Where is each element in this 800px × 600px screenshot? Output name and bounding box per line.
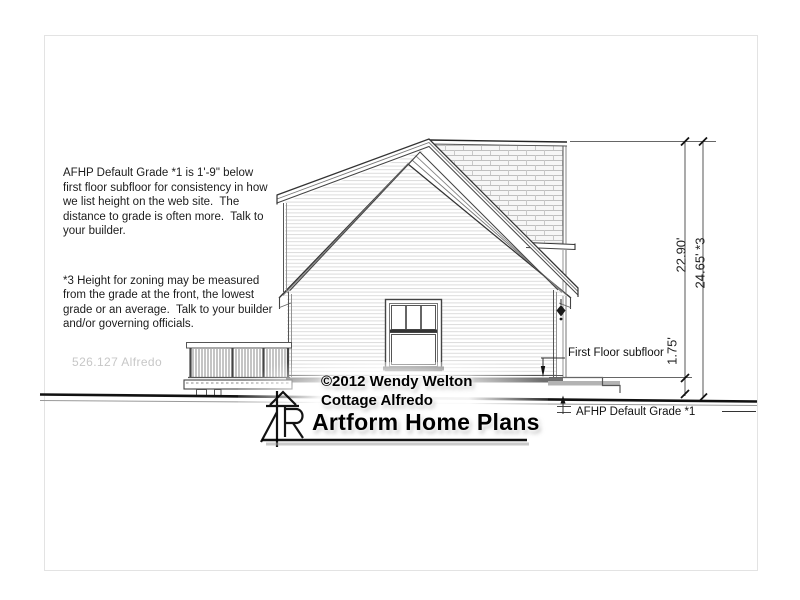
drawing-sheet: AFHP Default Grade *1 is 1'-9" below fir… xyxy=(0,0,800,600)
label-first-floor-subfloor: First Floor subfloor xyxy=(568,347,664,359)
window xyxy=(383,300,444,371)
dim-grade-to-subfloor: 1.75' xyxy=(665,337,680,365)
note-paragraph-2: *3 Height for zoning may be measured fro… xyxy=(63,274,303,332)
lantern-icon xyxy=(557,299,566,320)
company-name-text: Artform Home Plans xyxy=(312,409,540,436)
dim-subfloor-to-peak: 22.90' xyxy=(674,237,689,272)
note-paragraph-1: AFHP Default Grade *1 is 1'-9" below fir… xyxy=(63,166,303,239)
label-default-grade: AFHP Default Grade *1 xyxy=(576,406,695,418)
plan-name-text: Cottage Alfredo xyxy=(321,392,433,409)
grade-notes: AFHP Default Grade *1 is 1'-9" below fir… xyxy=(63,137,303,367)
branding-watermark: ©2012 Wendy Welton Cottage Alfredo Artfo… xyxy=(238,362,548,452)
dimension-lines xyxy=(541,138,756,415)
dim-grade-to-peak: 24.65' *3 xyxy=(693,238,708,289)
plan-number-watermark: 526.127 Alfredo xyxy=(72,355,162,369)
copyright-text: ©2012 Wendy Welton xyxy=(321,373,472,390)
